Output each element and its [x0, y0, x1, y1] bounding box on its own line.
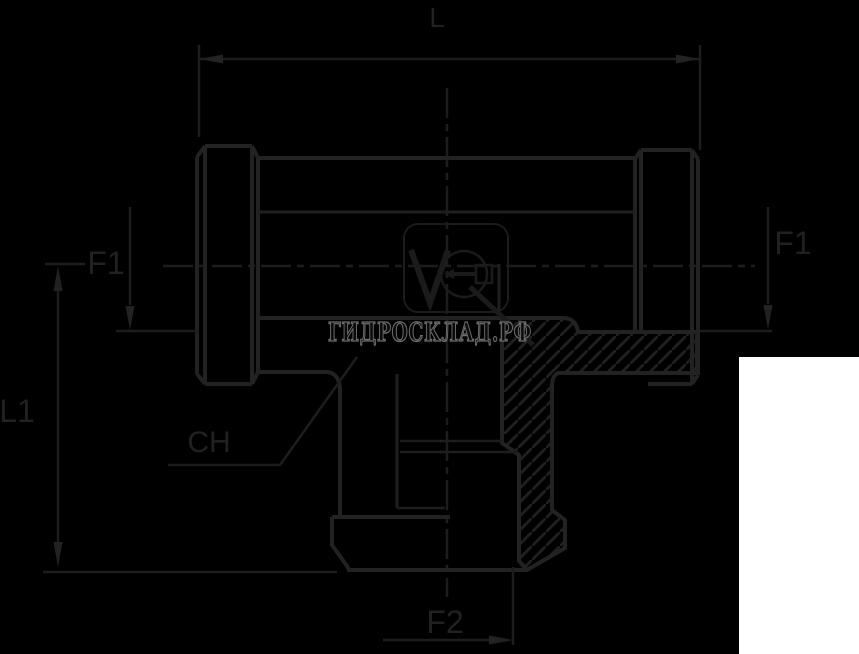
dim-F1-right: F1 [700, 207, 812, 331]
label-F1-right: F1 [774, 225, 811, 261]
dim-L1: L1 [0, 264, 337, 572]
label-F1-left: F1 [87, 245, 124, 281]
arrowhead-left [199, 55, 223, 64]
section-hatch [502, 320, 697, 569]
label-CH: CH [187, 426, 230, 459]
label-F2: F2 [426, 604, 463, 640]
dim-L: L [199, 2, 700, 150]
white-patch [739, 357, 859, 654]
drawing-canvas: L F1 F1 L1 CH F2 [0, 0, 859, 654]
label-L: L [429, 2, 445, 33]
logo-v-glyph [411, 250, 448, 303]
technical-drawing: L F1 F1 L1 CH F2 [0, 0, 859, 654]
arrowhead-right [676, 55, 700, 64]
dim-F1-left: F1 [87, 207, 199, 331]
label-L1: L1 [0, 393, 35, 429]
watermark-text: ГИДРОСКЛАД.РФ [328, 318, 532, 348]
